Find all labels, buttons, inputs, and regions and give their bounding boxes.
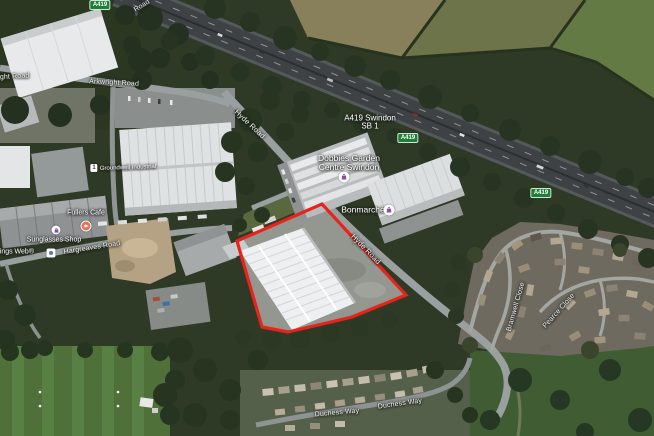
map-canvas[interactable]: A419 A419 A419 wright Road Arkwright Roa… xyxy=(0,0,654,436)
poi-label-fullers-cafe[interactable]: Fullers Cafe xyxy=(67,210,105,217)
poi-label-all-things-web[interactable]: All Things Web® xyxy=(0,249,34,256)
poi-dobbies-line2: Centre Swindon xyxy=(318,163,380,172)
web-globe-icon[interactable] xyxy=(47,249,56,258)
unit-number-badge: 1 xyxy=(90,164,97,172)
sports-field xyxy=(0,346,170,436)
satellite-imagery xyxy=(0,0,654,436)
shopping-bag-icon[interactable] xyxy=(339,172,350,183)
route-badge-label: A419 xyxy=(401,135,415,141)
route-badge-label: A419 xyxy=(93,2,107,8)
route-badge-label: A419 xyxy=(534,190,548,196)
poi-label-bonmarche[interactable]: Bonmarché xyxy=(341,206,384,215)
shopping-bag-icon[interactable] xyxy=(52,226,61,235)
motorway-destination-label: A419 Swindon SB 1 xyxy=(344,115,396,130)
cafe-icon[interactable] xyxy=(81,221,92,232)
route-badge-a419-east: A419 xyxy=(530,188,551,198)
poi-label-sunglasses-shop[interactable]: Sunglasses Shop xyxy=(27,237,81,244)
shopping-bag-icon[interactable] xyxy=(384,205,395,216)
motorway-label-line2: SB 1 xyxy=(344,122,396,130)
route-badge-a419-mid: A419 xyxy=(397,133,418,143)
route-badge-a419-north: A419 xyxy=(89,0,110,10)
poi-label-dobbies[interactable]: Dobbies Garden Centre Swindon xyxy=(318,154,380,172)
